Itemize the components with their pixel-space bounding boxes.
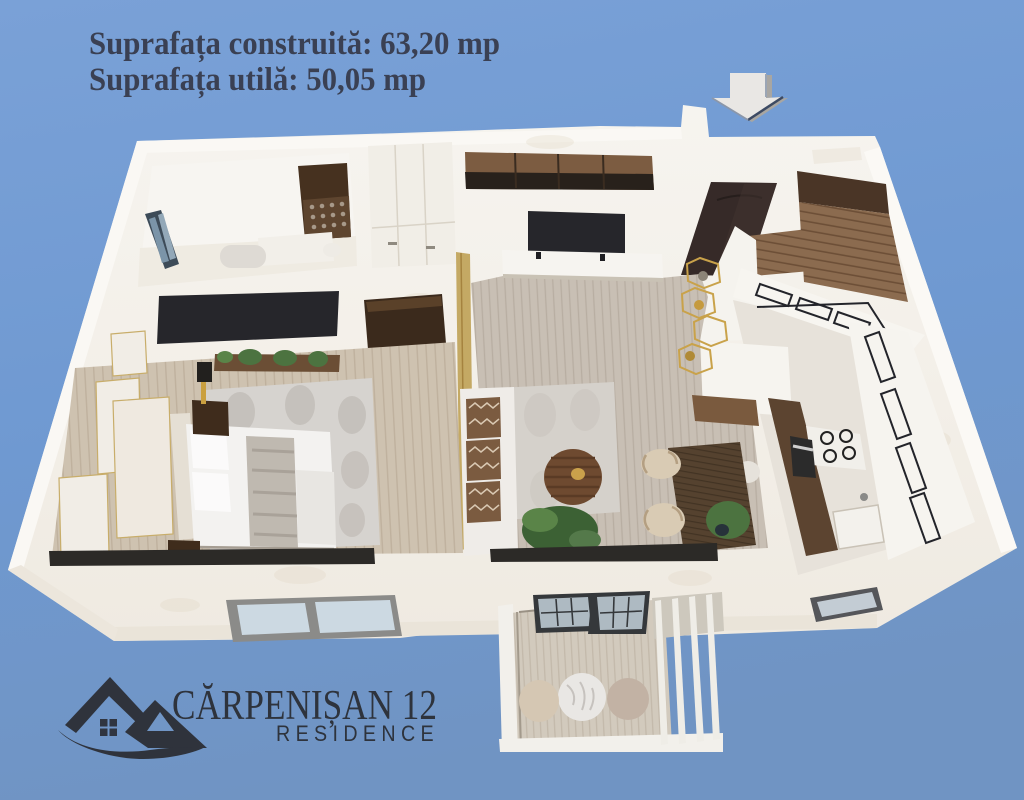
svg-text:Suprafața construită: 63,20 mp: Suprafața construită: 63,20 mp (89, 26, 500, 63)
svg-text:RESIDENCE: RESIDENCE (276, 721, 439, 746)
svg-text:Suprafața utilă: 50,05 mp: Suprafața utilă: 50,05 mp (89, 62, 426, 99)
